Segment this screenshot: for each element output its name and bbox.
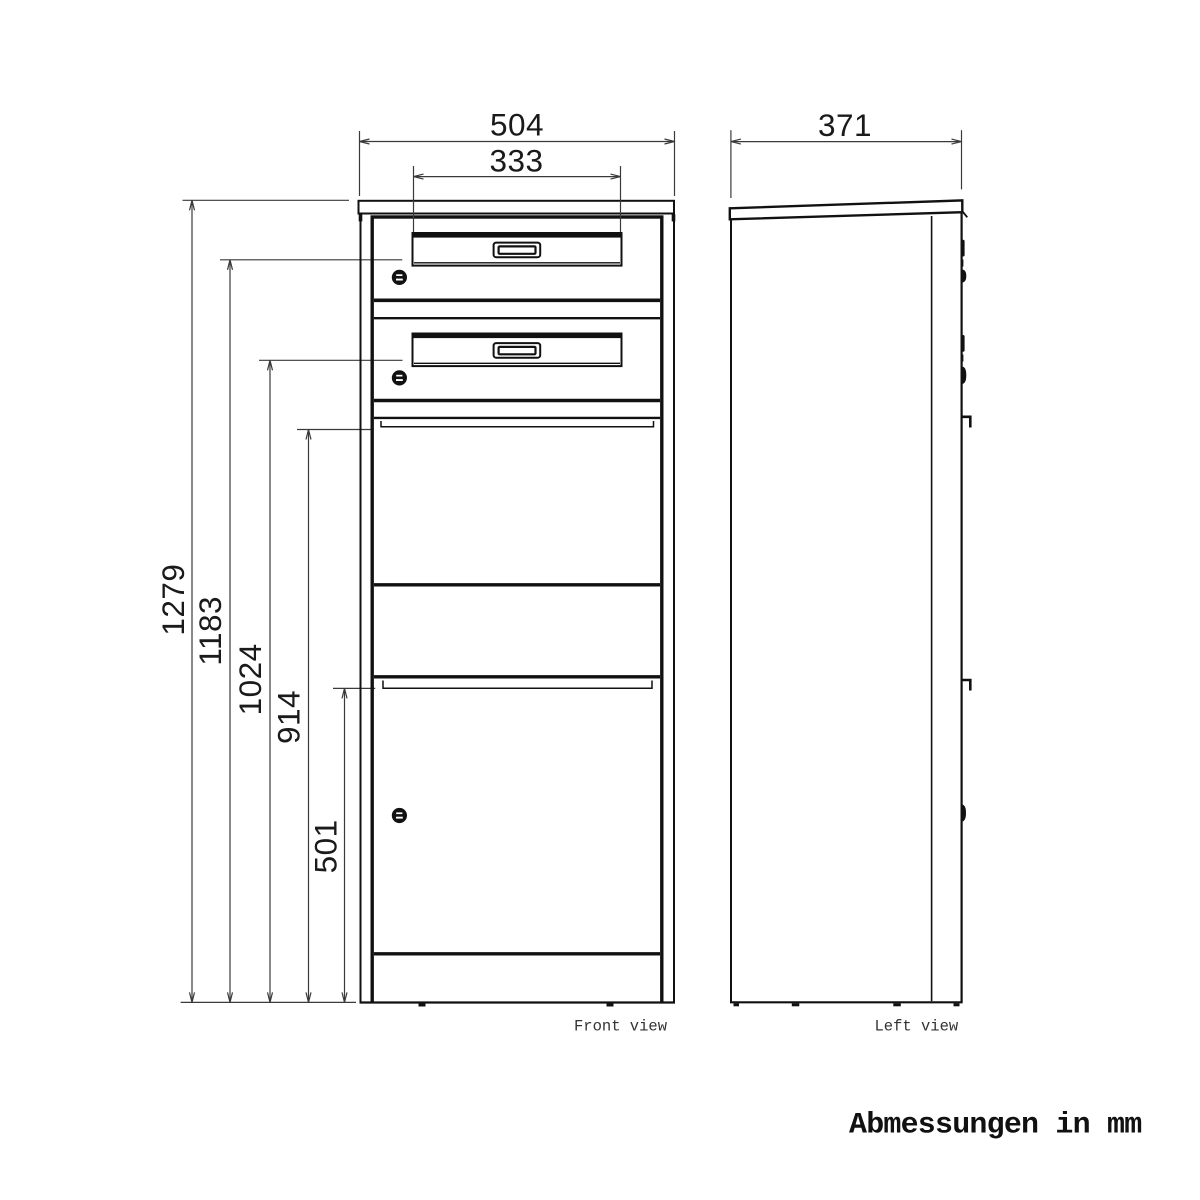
svg-text:914: 914 [271,690,307,744]
svg-text:1183: 1183 [192,596,228,666]
svg-text:371: 371 [818,107,872,143]
svg-text:Left view: Left view [875,1018,959,1036]
svg-text:504: 504 [490,107,544,143]
svg-text:501: 501 [308,819,344,873]
svg-text:333: 333 [489,143,543,179]
svg-text:1024: 1024 [232,643,268,715]
svg-text:Front view: Front view [574,1018,668,1036]
svg-text:Abmessungen in mm: Abmessungen in mm [849,1109,1141,1143]
svg-text:1279: 1279 [155,564,191,636]
